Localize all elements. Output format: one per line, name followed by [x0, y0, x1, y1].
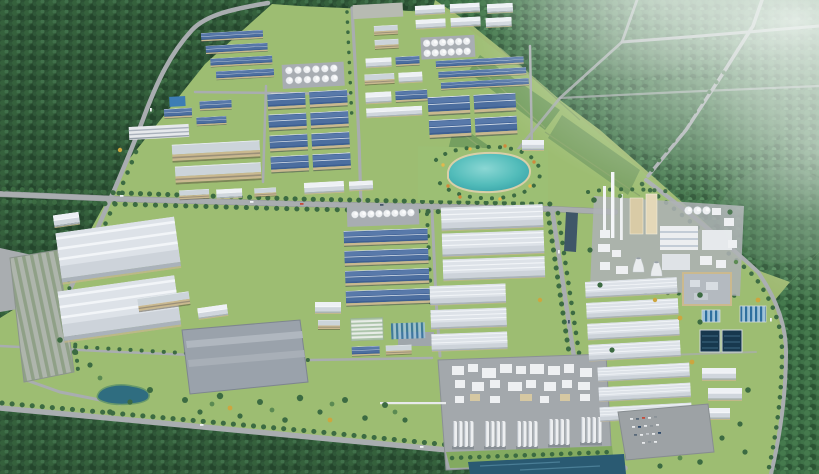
striped-clarifier	[702, 310, 720, 322]
scene-canvas	[0, 0, 819, 474]
industrial-park-aerial-render	[0, 0, 819, 474]
tan-building	[254, 187, 276, 197]
blue-building	[164, 108, 192, 119]
parking-lot-right	[618, 404, 714, 460]
tan-building	[179, 189, 209, 201]
tan-building	[364, 73, 395, 86]
white-building	[349, 180, 373, 191]
pipe-rack	[380, 402, 446, 404]
tan-building	[374, 25, 398, 36]
white-building	[315, 302, 341, 314]
lake	[448, 153, 530, 192]
greenhouse	[351, 318, 384, 341]
lake-park	[418, 140, 548, 202]
white-building	[304, 181, 345, 195]
tan-building	[374, 39, 398, 50]
white-building	[365, 57, 391, 68]
blue-building	[395, 89, 428, 103]
dark-long-building	[564, 212, 578, 252]
stack	[620, 194, 623, 240]
tan-building	[318, 320, 340, 330]
tan-building	[386, 345, 412, 356]
white-building	[415, 4, 445, 16]
striped-clarifier	[740, 306, 766, 322]
blue-building	[352, 346, 380, 357]
admin-building	[682, 272, 732, 306]
blue-building	[196, 116, 226, 127]
landscape-pond	[97, 385, 149, 405]
blue-building	[395, 56, 419, 67]
preheater-tower	[630, 198, 643, 234]
blue-building	[199, 100, 231, 112]
solar-parking	[391, 322, 426, 339]
white-building	[398, 72, 423, 84]
large-gray-warehouse	[182, 320, 308, 394]
white-building	[216, 188, 242, 199]
gravel-yard	[353, 2, 404, 19]
white-building	[365, 91, 392, 104]
white-building	[415, 18, 445, 30]
solar-carport	[169, 96, 186, 107]
